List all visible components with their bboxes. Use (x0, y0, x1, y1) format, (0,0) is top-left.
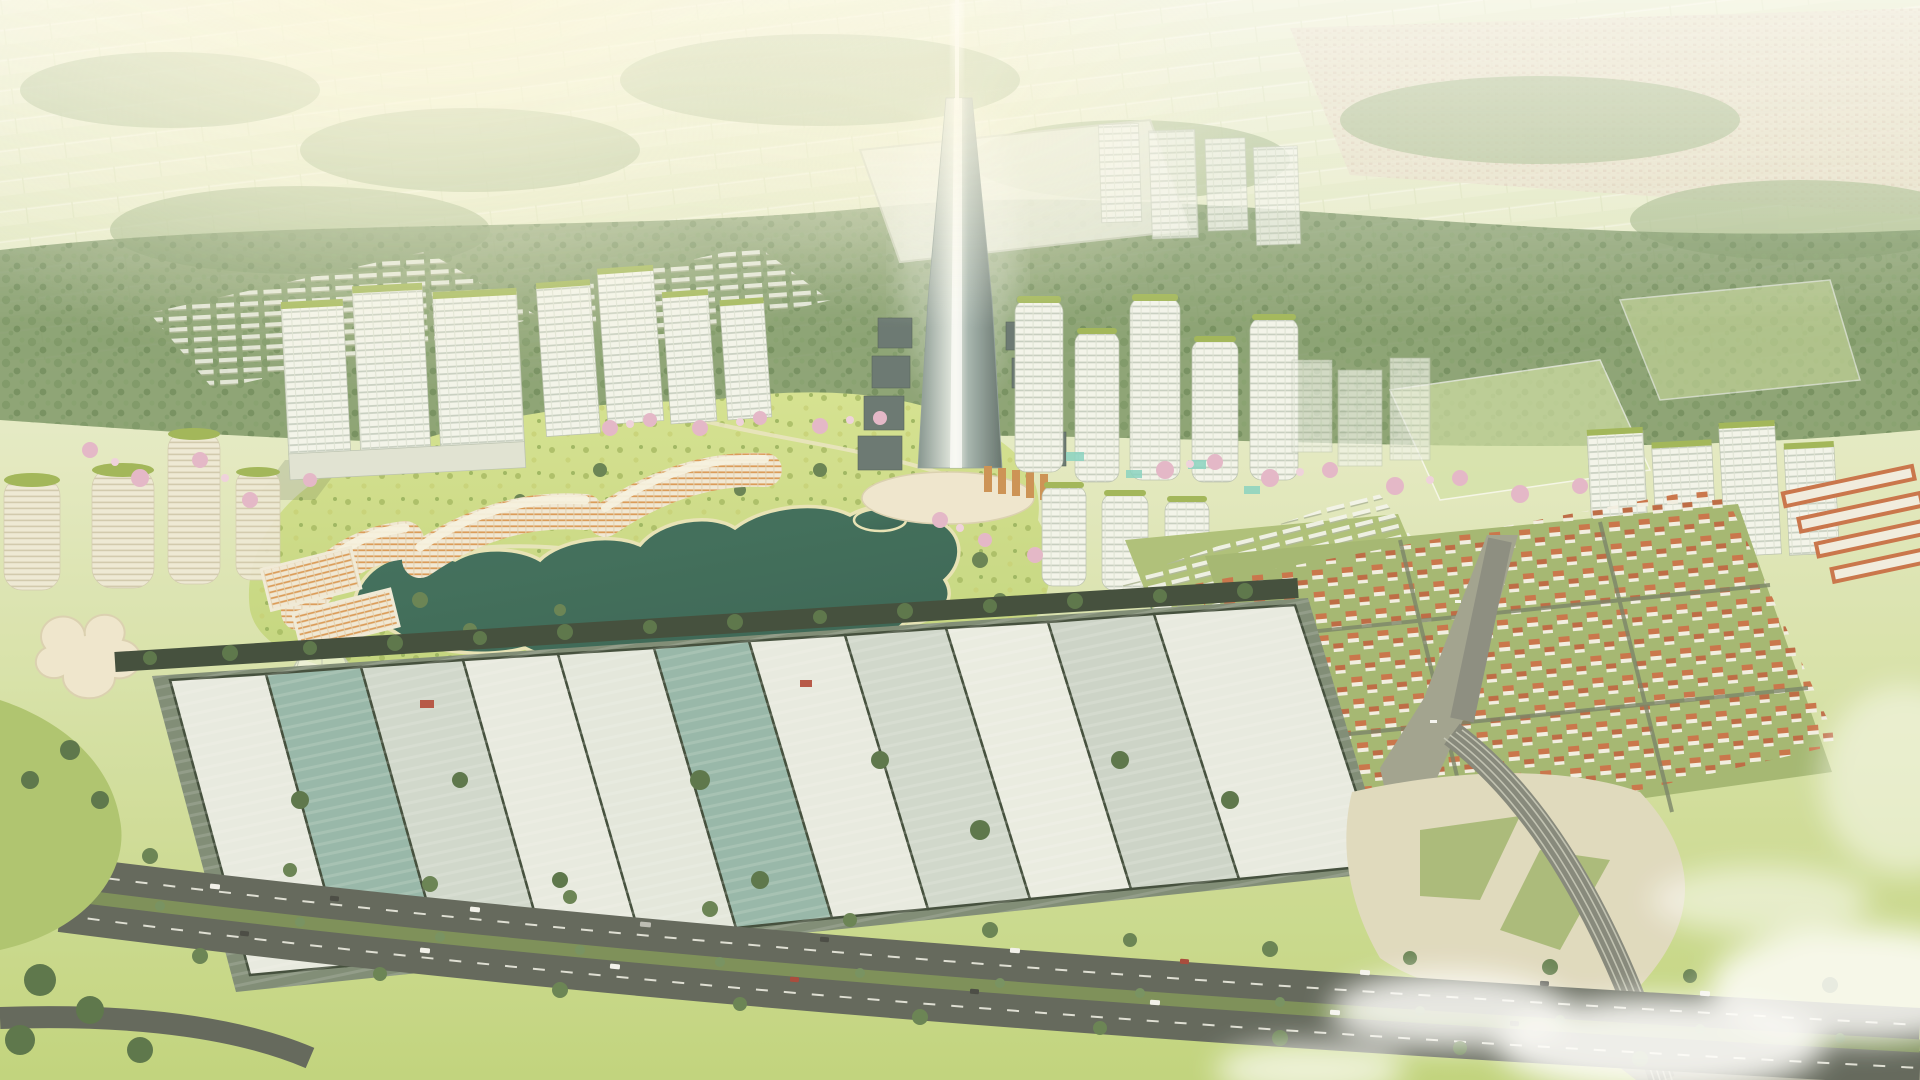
aerial-city-render (0, 0, 1920, 1080)
atmosphere-haze (0, 0, 1920, 1080)
render-canvas (0, 0, 1920, 1080)
